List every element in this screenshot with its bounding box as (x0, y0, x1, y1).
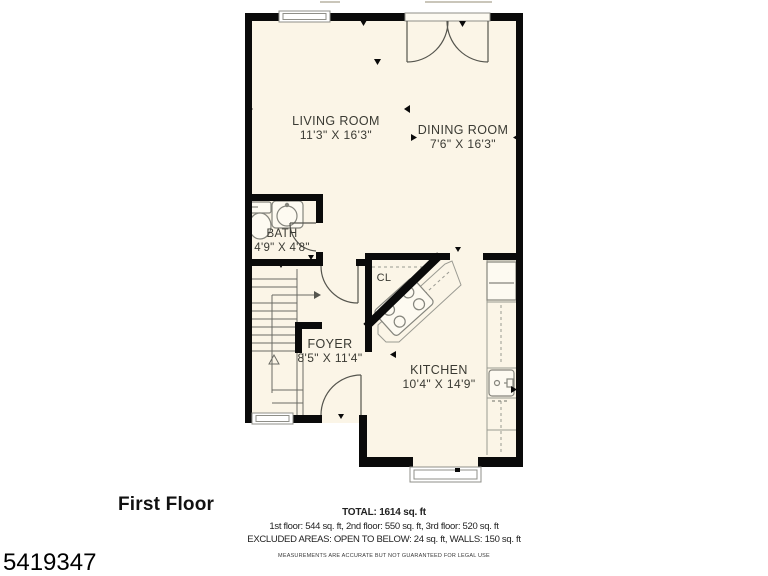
refrigerator (487, 262, 516, 300)
dining-room-label: DINING ROOM 7'6" X 16'3" (418, 124, 509, 151)
living-room-name: LIVING ROOM (292, 115, 380, 128)
bath-label: BATH 4'9" X 4'8" (254, 228, 310, 255)
excluded-area-text: EXCLUDED AREAS: OPEN TO BELOW: 24 sq. ft… (247, 534, 520, 545)
foyer-name: FOYER (297, 338, 362, 351)
per-floor-area-text: 1st floor: 544 sq. ft, 2nd floor: 550 sq… (247, 521, 520, 532)
dining-room-dimensions: 7'6" X 16'3" (418, 138, 509, 151)
kitchen-label: KITCHEN 10'4" X 14'9" (402, 364, 475, 391)
foyer-dimensions: 8'5" X 11'4" (297, 352, 362, 365)
floor-title: First Floor (118, 494, 214, 516)
disclaimer-text: MEASUREMENTS ARE ACCURATE BUT NOT GUARAN… (247, 553, 520, 559)
floor-plan-drawing (0, 0, 768, 576)
window-foyer (252, 413, 293, 424)
closet-label: CL (377, 272, 392, 284)
listing-id: 5419347 (3, 549, 96, 576)
bathroom-sink (272, 201, 303, 228)
living-room-label: LIVING ROOM 11'3" X 16'3" (292, 115, 380, 142)
kitchen-name: KITCHEN (402, 364, 475, 377)
dining-room-name: DINING ROOM (418, 124, 509, 137)
kitchen-sink (489, 370, 514, 401)
floor-plan-page: LIVING ROOM 11'3" X 16'3" DINING ROOM 7'… (0, 0, 768, 576)
window-top (279, 11, 330, 22)
living-room-dimensions: 11'3" X 16'3" (292, 129, 380, 142)
total-area-text: TOTAL: 1614 sq. ft (247, 507, 520, 518)
bath-name: BATH (254, 228, 310, 241)
foyer-label: FOYER 8'5" X 11'4" (297, 338, 362, 365)
bath-dimensions: 4'9" X 4'8" (254, 242, 310, 255)
kitchen-dimensions: 10'4" X 14'9" (402, 378, 475, 391)
window-kitchen-bay (410, 455, 481, 482)
area-summary: TOTAL: 1614 sq. ft 1st floor: 544 sq. ft… (247, 507, 520, 559)
